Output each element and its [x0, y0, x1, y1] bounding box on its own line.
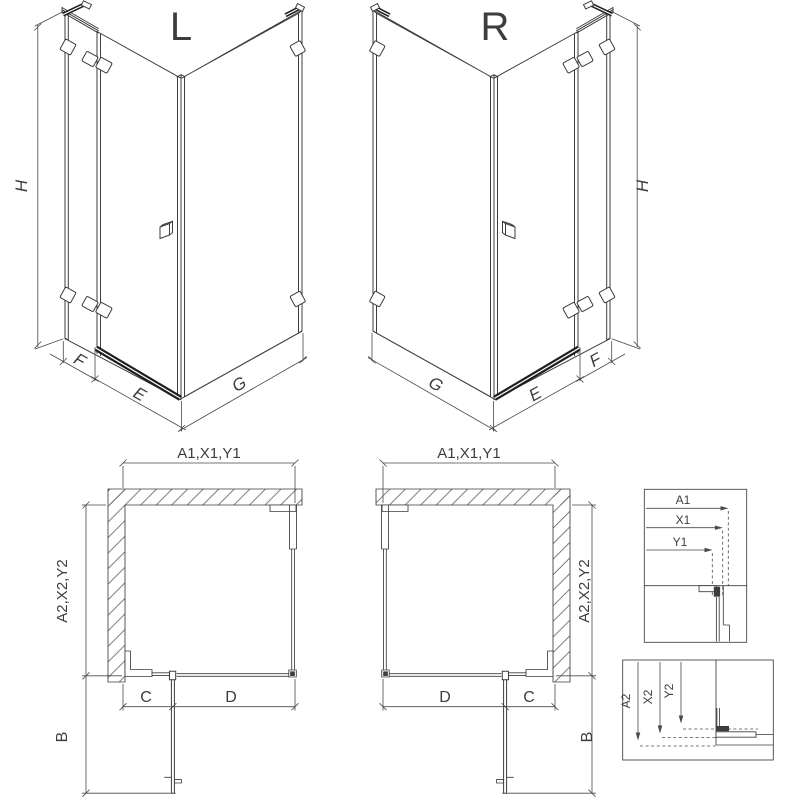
plan-left-segment-d-label: D: [225, 689, 237, 706]
shower-enclosure-drawing: L H F E G R H F E G A1,X1,Y1 A2,X2,Y2 C …: [0, 0, 800, 800]
technical-drawing-page: L H F E G R H F E G A1,X1,Y1 A2,X2,Y2 C …: [0, 0, 800, 800]
plan-right-segment-d-label: D: [439, 689, 451, 706]
dim-label-door-left: E: [130, 383, 150, 405]
plan-left-segment-c-label: C: [140, 689, 152, 706]
variant-label-left: L: [170, 5, 192, 49]
detail-depth-label-x2: X2: [641, 689, 655, 704]
detail-box-width-measures: A1 X1 Y1: [644, 489, 746, 642]
plan-left-width-dim-label: A1,X1,Y1: [177, 445, 240, 462]
detail-width-label-a1: A1: [676, 493, 691, 507]
variant-label-right: R: [481, 5, 510, 49]
plan-left-door-projection-label: B: [54, 732, 71, 743]
wall-hatch-top-left-plan: [108, 489, 302, 505]
detail-width-label-y1: Y1: [673, 535, 688, 549]
detail-depth-label-a2: A2: [619, 693, 633, 708]
detail-depth-label-y2: Y2: [662, 683, 676, 698]
dim-label-panel-right: F: [586, 349, 606, 371]
plan-right-width-dim-label: A1,X1,Y1: [437, 445, 500, 462]
dim-label-panel-left: F: [71, 349, 91, 371]
plan-left-view: A1,X1,Y1 A2,X2,Y2 C D B: [54, 445, 302, 797]
wall-hatch-side-left-plan: [108, 489, 125, 682]
wall-hatch-top-right-plan: [376, 489, 570, 505]
plan-right-depth-dim-label: A2,X2,Y2: [576, 559, 593, 622]
plan-right-view: A1,X1,Y1 A2,X2,Y2 D C B: [376, 445, 596, 797]
dim-label-height-right: H: [633, 179, 652, 192]
wall-hatch-side-right-plan: [553, 489, 570, 682]
plan-right-segment-c-label: C: [523, 689, 535, 706]
unit-right-3d-view: R H F E G: [368, 1, 652, 432]
dim-label-height-left: H: [12, 179, 31, 192]
plan-right-door-projection-label: B: [579, 732, 596, 743]
dim-label-door-right: E: [526, 383, 546, 405]
detail-box-depth-measures: A2 X2 Y2: [619, 660, 773, 760]
unit-left-3d-view: L H F E G: [12, 1, 307, 432]
detail-width-label-x1: X1: [676, 513, 691, 527]
plan-left-depth-dim-label: A2,X2,Y2: [54, 559, 71, 622]
